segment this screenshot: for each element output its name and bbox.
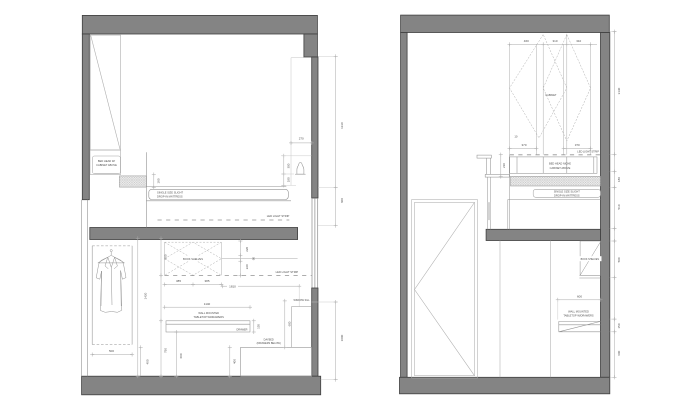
svg-text:1810: 1810 (229, 284, 236, 288)
svg-text:180: 180 (156, 178, 160, 183)
svg-text:385: 385 (176, 279, 181, 283)
svg-text:180: 180 (617, 177, 621, 182)
svg-text:600: 600 (179, 353, 183, 358)
svg-text:750: 750 (164, 348, 168, 353)
svg-text:500: 500 (617, 257, 621, 262)
svg-text:1130: 1130 (340, 122, 344, 129)
svg-text:CABINET: CABINET (545, 93, 557, 97)
svg-text:600: 600 (340, 198, 344, 203)
svg-text:3130: 3130 (617, 87, 621, 94)
svg-text:600: 600 (287, 321, 291, 326)
svg-text:BED HEAD W/: BED HEAD W/ (98, 159, 115, 163)
svg-text:370: 370 (575, 143, 580, 147)
svg-text:DROP-IN MATTRESS: DROP-IN MATTRESS (157, 195, 183, 199)
svg-text:WALL MOUNTED: WALL MOUNTED (568, 309, 589, 313)
svg-text:SINGLE SIZE SLIGHT: SINGLE SIZE SLIGHT (554, 190, 581, 194)
svg-text:230: 230 (502, 163, 506, 168)
svg-text:1000: 1000 (340, 334, 344, 341)
svg-text:DAYBED: DAYBED (264, 338, 274, 341)
svg-text:500: 500 (109, 349, 114, 353)
svg-text:LED LIGHT STRIP: LED LIGHT STRIP (577, 149, 599, 153)
svg-text:180: 180 (286, 177, 290, 182)
svg-text:SINGLE SIZE SLIGHT: SINGLE SIZE SLIGHT (157, 190, 184, 194)
svg-text:460: 460 (524, 39, 529, 43)
svg-text:TABLETOP W/DRAWERS: TABLETOP W/DRAWERS (194, 315, 225, 319)
svg-text:1420: 1420 (144, 292, 148, 299)
svg-text:600: 600 (577, 295, 582, 299)
svg-text:LED LIGHT STRIP: LED LIGHT STRIP (267, 214, 290, 218)
svg-text:400: 400 (145, 359, 149, 364)
svg-text:90: 90 (252, 257, 256, 261)
svg-text:DRAWER: DRAWER (236, 328, 247, 331)
svg-text:510: 510 (617, 204, 621, 209)
svg-text:LED LIGHT STRIP: LED LIGHT STRIP (276, 270, 299, 274)
svg-text:500: 500 (164, 254, 168, 259)
svg-text:1140: 1140 (204, 302, 211, 306)
svg-text:385: 385 (204, 279, 209, 283)
svg-text:WINDOW SILL: WINDOW SILL (293, 299, 310, 302)
svg-text:DROP-IN MATTRESS: DROP-IN MATTRESS (554, 194, 580, 198)
svg-text:310: 310 (576, 39, 581, 43)
svg-text:TABLETOP W/DRAWERS: TABLETOP W/DRAWERS (563, 313, 594, 317)
svg-text:150: 150 (256, 324, 260, 329)
svg-text:270: 270 (299, 137, 304, 141)
svg-text:150: 150 (617, 323, 621, 328)
svg-text:220: 220 (245, 246, 249, 251)
svg-text:600: 600 (617, 350, 621, 355)
svg-text:BED HEAD NICHE: BED HEAD NICHE (549, 162, 571, 166)
svg-text:310: 310 (552, 39, 557, 43)
svg-text:CABINET ABOVE: CABINET ABOVE (96, 163, 117, 167)
svg-text:WALL MOUNTED: WALL MOUNTED (198, 311, 219, 315)
svg-text:BOOK SHELVES: BOOK SHELVES (581, 258, 600, 261)
svg-text:370: 370 (521, 143, 526, 147)
svg-text:BOOK SHELVES: BOOK SHELVES (183, 257, 203, 261)
svg-text:10: 10 (514, 135, 518, 139)
svg-text:(DRAWERS BELOW): (DRAWERS BELOW) (257, 342, 281, 345)
svg-text:300: 300 (286, 163, 290, 168)
svg-text:400: 400 (232, 359, 236, 364)
svg-text:220: 220 (245, 264, 249, 269)
svg-text:CABINET ABOVE: CABINET ABOVE (550, 166, 571, 170)
